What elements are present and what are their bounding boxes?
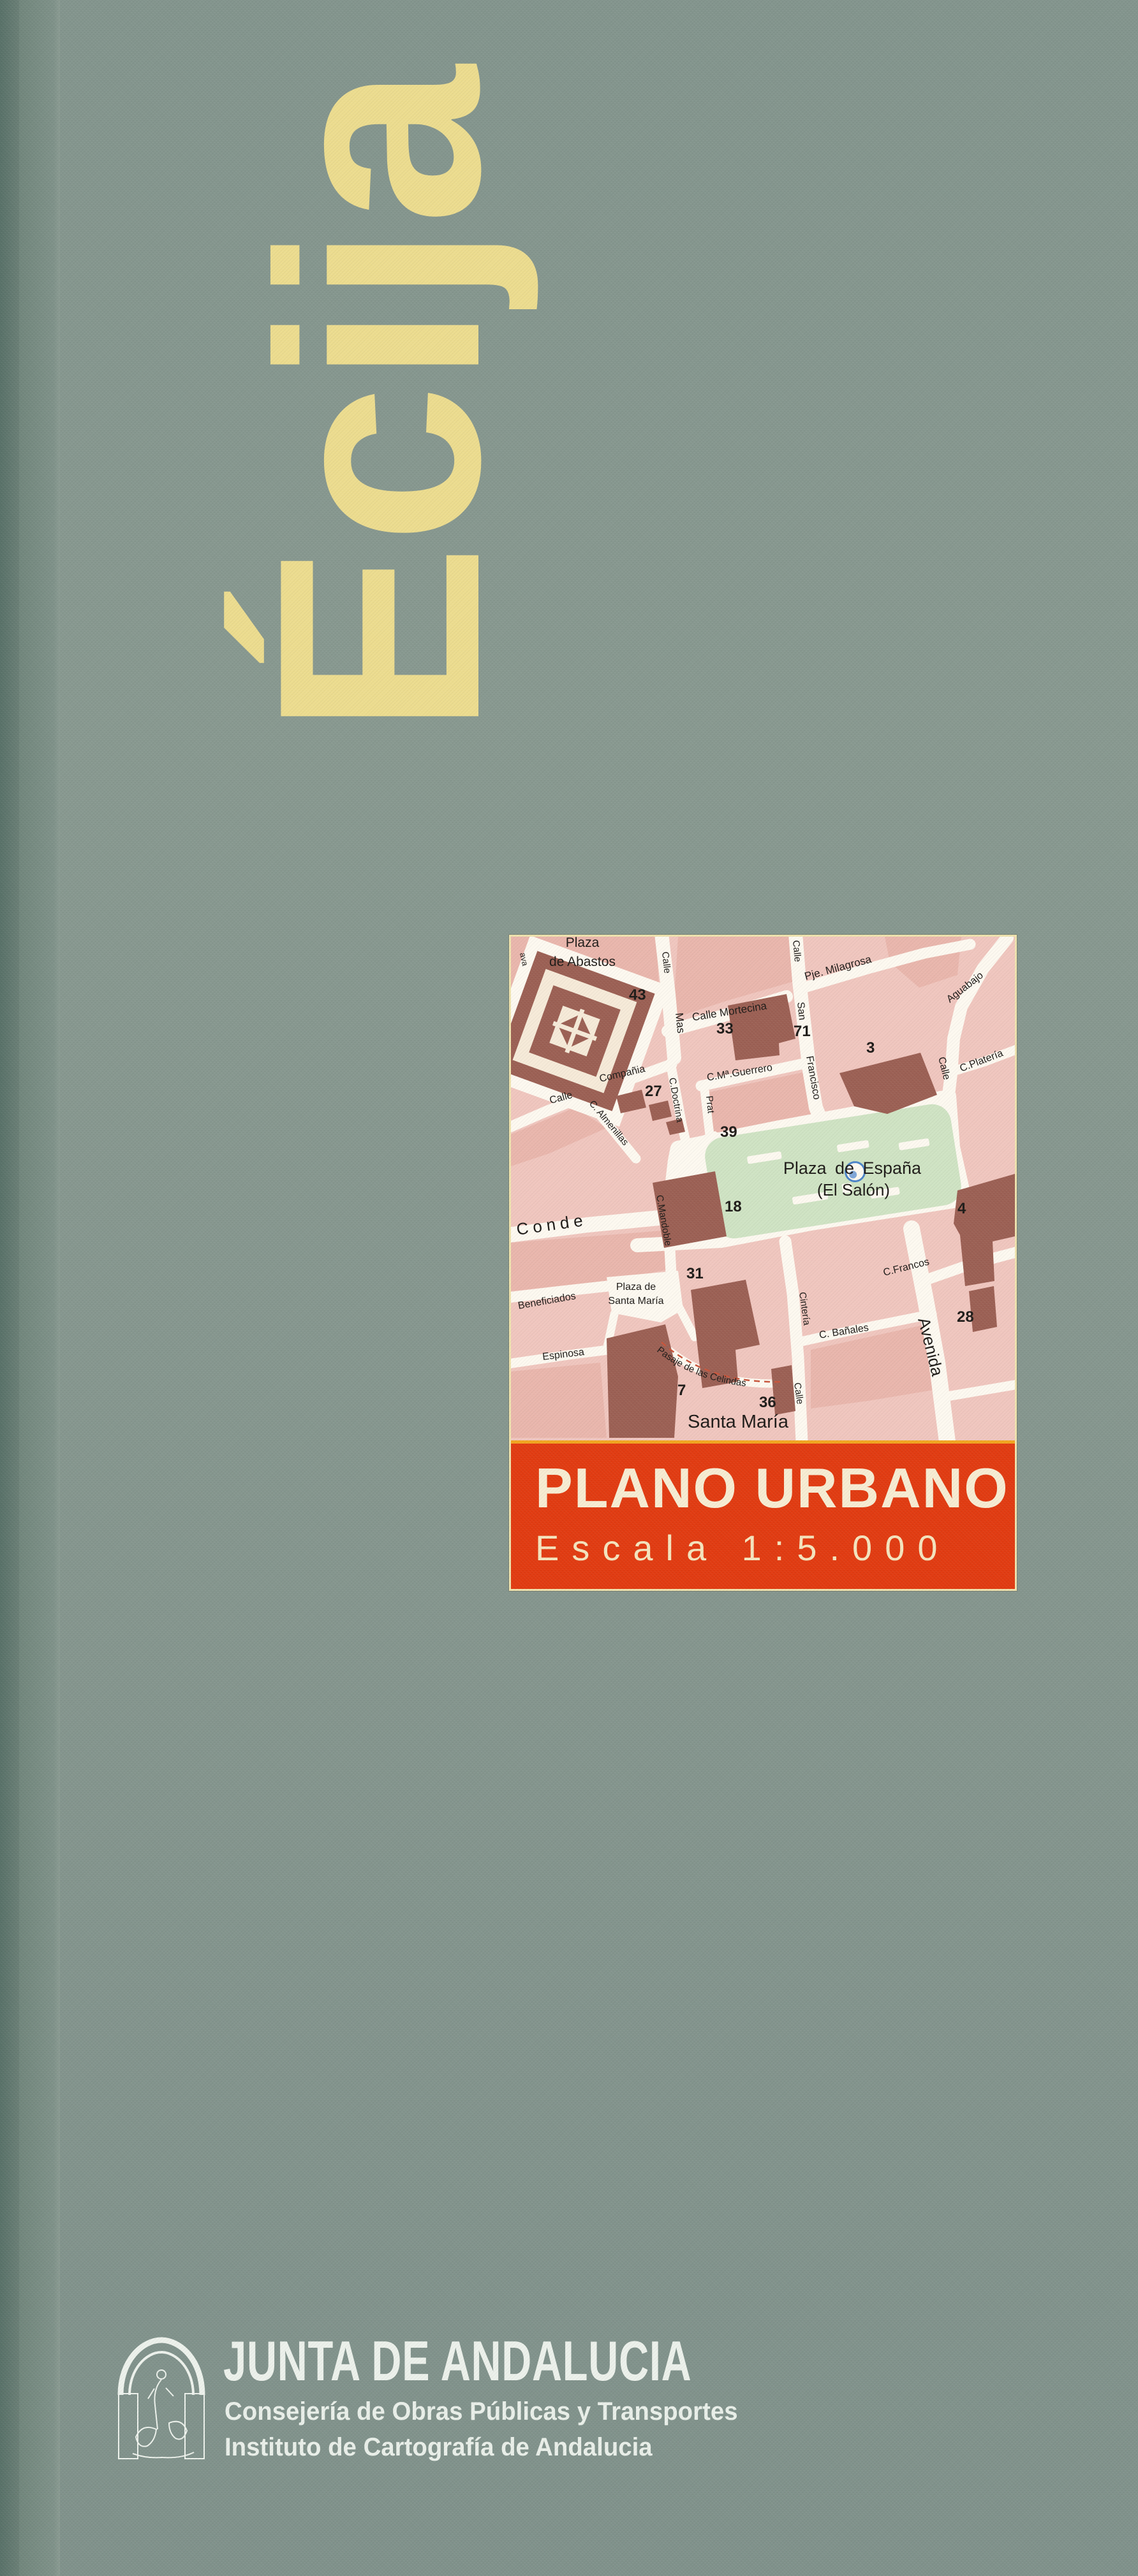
banner-heading: PLANO URBANO: [535, 1444, 1015, 1516]
building-number: 71: [794, 1023, 811, 1040]
street-bottom-east: [943, 1384, 1015, 1397]
place-label: Plaza de España: [783, 1159, 922, 1178]
building-number: 7: [677, 1382, 686, 1399]
banner-scale: Escala 1:5.000: [535, 1516, 1015, 1566]
place-label: Plaza: [566, 937, 600, 950]
building-number: 33: [716, 1020, 734, 1037]
street-label: Calle: [660, 951, 672, 974]
building-number: 39: [720, 1123, 737, 1141]
title-banner: PLANO URBANO Escala 1:5.000: [511, 1440, 1015, 1589]
junta-de-andalucia-emblem-icon: [117, 2335, 206, 2463]
building-number: 3: [866, 1039, 875, 1057]
map-cover: Écija: [0, 0, 1138, 2576]
place-label: Santa María: [608, 1296, 663, 1306]
street-sm-corridor: [679, 1306, 695, 1337]
publisher-department: Consejería de Obras Públicas y Transport…: [225, 2397, 738, 2426]
place-label: de Abastos: [549, 955, 616, 969]
place-label: Santa María: [688, 1412, 789, 1432]
cover-title: Écija: [219, 64, 541, 736]
publisher-institute: Instituto de Cartografía de Andalucia: [225, 2433, 653, 2462]
building-number: 27: [645, 1083, 662, 1100]
building-number: 43: [629, 986, 646, 1004]
street-label: Calle: [790, 940, 803, 963]
building-number: 31: [686, 1265, 704, 1282]
street-label: C. Bañales: [818, 1322, 869, 1341]
city-map: avaCalleMasCalle MortecinaCalleSanFranci…: [511, 937, 1015, 1440]
building-number: 4: [957, 1200, 966, 1217]
street-label: Mas: [673, 1012, 687, 1034]
place-label: Plaza de: [616, 1282, 656, 1292]
building-number: 36: [759, 1394, 776, 1411]
publisher-name: JUNTA DE ANDALUCIA: [223, 2329, 691, 2394]
place-label: (El Salón): [817, 1180, 890, 1199]
street-label: Prat: [704, 1095, 716, 1115]
building-number: 28: [957, 1308, 974, 1326]
street-label: San: [795, 1002, 808, 1021]
building-number: 18: [725, 1198, 742, 1215]
map-inset: avaCalleMasCalle MortecinaCalleSanFranci…: [509, 935, 1017, 1591]
cover-title-area: Écija: [0, 0, 638, 829]
